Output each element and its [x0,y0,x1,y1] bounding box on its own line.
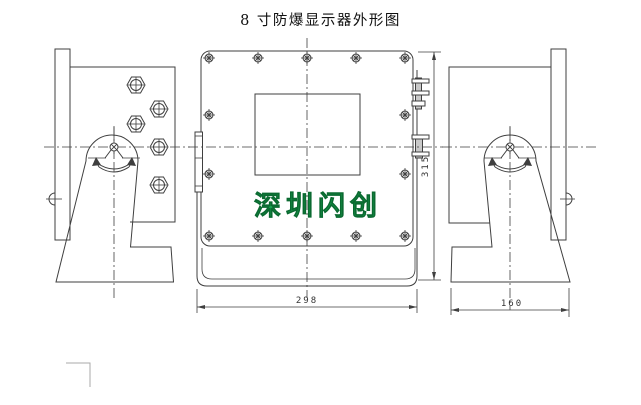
mounting-plate [449,67,551,223]
dimension-label: 298 [296,296,318,306]
hex-bolt-icon [150,177,168,193]
left-side-view [44,49,190,300]
right-side-view [442,49,598,310]
dimension-label: 160 [501,299,523,309]
door-latch [412,135,429,158]
watermark-text: 深圳闪创 [254,191,382,222]
hex-bolt-icon [127,116,145,132]
enclosure-flange [202,248,415,279]
page-canvas: 8 寸防爆显示器外形图 [0,0,641,405]
engineering-drawing-svg: 298 315 160 深圳闪创 [0,0,641,405]
hex-bolt-icon [150,101,168,117]
mounting-bracket-stand [451,135,570,282]
arrowhead [451,308,459,312]
border-corner-mark [66,363,90,387]
display-side-panel [551,49,566,240]
hex-bolt-icon [127,77,145,93]
display-screen-window [255,94,360,175]
hex-bolt-icon [150,139,168,155]
display-side-panel [55,49,70,240]
dimension-label: 315 [421,155,431,177]
mounting-bracket-stand [56,135,174,282]
door-latch [412,78,429,109]
arrowhead [409,305,417,309]
arrowhead [432,272,436,280]
arrowhead [432,52,436,60]
arrowhead [561,308,569,312]
door-hinge [195,132,203,192]
front-view [188,38,443,298]
arrowhead [197,305,205,309]
